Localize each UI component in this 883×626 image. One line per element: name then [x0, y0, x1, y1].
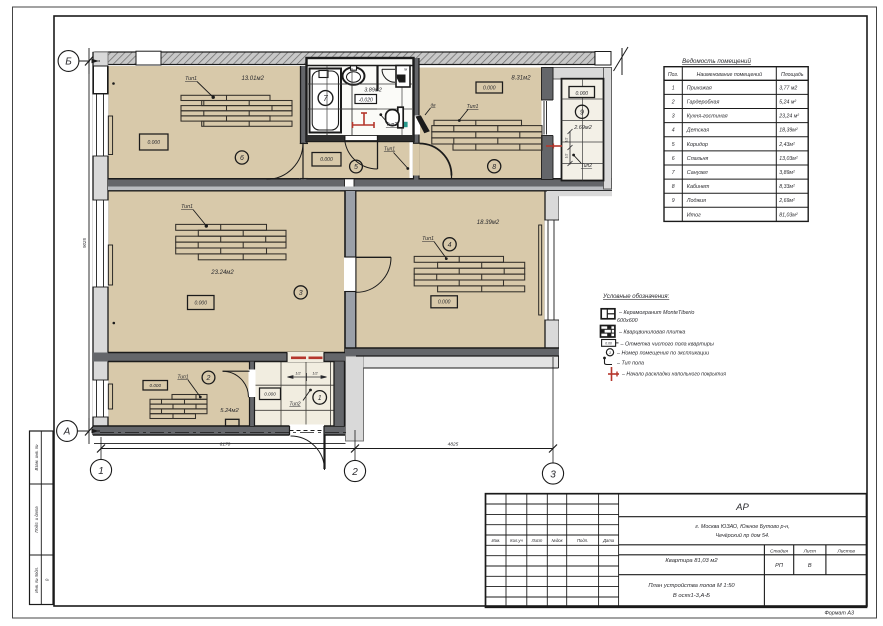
svg-text:3,77 м2: 3,77 м2: [779, 85, 797, 91]
svg-text:– Номер помещения по экспликац: – Номер помещения по экспликации: [616, 351, 709, 357]
svg-text:Наименование помещений: Наименование помещений: [697, 71, 762, 78]
svg-text:9: 9: [580, 110, 584, 117]
svg-text:г. Москва ЮЗАО, Южное Бутово р: г. Москва ЮЗАО, Южное Бутово р-н,: [695, 524, 790, 530]
svg-text:2,43м²: 2,43м²: [778, 142, 795, 148]
svg-text:1: 1: [318, 395, 322, 402]
svg-text:Поз.: Поз.: [668, 72, 678, 78]
svg-text:АР: АР: [735, 502, 749, 513]
svg-text:3.89м2: 3.89м2: [364, 88, 382, 94]
svg-text:0.000: 0.000: [320, 157, 333, 163]
svg-text:Ведомость помещений: Ведомость помещений: [682, 58, 751, 65]
svg-text:– Начало раскладки напольного: – Начало раскладки напольного покрытия: [621, 372, 726, 378]
svg-text:5.24м2: 5.24м2: [220, 408, 239, 414]
svg-text:0.000: 0.000: [150, 383, 162, 388]
svg-text:23.24м2: 23.24м2: [210, 270, 234, 276]
svg-text:2: 2: [206, 375, 211, 382]
svg-text:Прихожая: Прихожая: [687, 85, 712, 91]
svg-text:Листов: Листов: [836, 549, 855, 555]
svg-text:Тип2: Тип2: [386, 122, 397, 128]
svg-text:4825: 4825: [448, 442, 459, 448]
svg-text:0.000: 0.000: [147, 140, 160, 146]
svg-text:В: В: [808, 563, 812, 569]
svg-text:4: 4: [672, 128, 675, 134]
svg-text:В осях1-3,А-Б: В осях1-3,А-Б: [673, 593, 710, 599]
svg-text:9025: 9025: [82, 237, 87, 248]
svg-text:5,24 м²: 5,24 м²: [779, 99, 796, 105]
svg-text:4: 4: [448, 242, 452, 249]
svg-text:-0.020: -0.020: [359, 97, 373, 103]
svg-text:Тип1: Тип1: [181, 204, 193, 210]
svg-text:5: 5: [354, 164, 358, 171]
svg-text:0.000: 0.000: [483, 85, 496, 91]
svg-text:Лист: Лист: [803, 549, 816, 555]
svg-text:0.00: 0.00: [605, 342, 612, 346]
svg-text:Спальня: Спальня: [687, 156, 709, 162]
svg-text:Квартира 81,03 м2: Квартира 81,03 м2: [665, 558, 718, 564]
svg-text:Стадия: Стадия: [770, 549, 788, 555]
svg-text:– Кварцвиниловая плитка: – Кварцвиниловая плитка: [618, 330, 685, 336]
svg-text:6: 6: [240, 155, 244, 162]
svg-text:Коридор: Коридор: [687, 142, 708, 148]
svg-text:0.000: 0.000: [264, 392, 276, 397]
svg-text:Площадь: Площадь: [781, 72, 804, 78]
svg-text:1: 1: [609, 350, 611, 355]
svg-text:Взам. инв. №: Взам. инв. №: [34, 444, 39, 470]
svg-text:3: 3: [550, 469, 556, 480]
svg-text:дв: дв: [431, 103, 436, 108]
svg-text:6170: 6170: [220, 442, 231, 448]
svg-text:0.000: 0.000: [576, 91, 589, 97]
svg-text:Кабинет: Кабинет: [687, 184, 710, 190]
svg-text:Тип2: Тип2: [581, 163, 592, 169]
svg-text:600х600: 600х600: [617, 318, 638, 324]
svg-text:№док: №док: [551, 538, 563, 543]
svg-text:18,39м²: 18,39м²: [779, 128, 798, 134]
svg-text:5: 5: [672, 142, 675, 148]
svg-text:2.69м2: 2.69м2: [573, 125, 592, 131]
svg-text:Лист: Лист: [531, 538, 543, 543]
svg-text:7: 7: [323, 94, 328, 103]
svg-text:3,89м²: 3,89м²: [779, 170, 795, 176]
svg-text:8: 8: [492, 164, 496, 171]
svg-text:13.01м2: 13.01м2: [241, 76, 264, 82]
svg-text:8.31м2: 8.31м2: [511, 76, 531, 82]
svg-text:1: 1: [98, 466, 104, 477]
svg-text:13,03м²: 13,03м²: [779, 156, 798, 162]
svg-text:РП: РП: [775, 563, 784, 569]
svg-text:3: 3: [299, 290, 303, 297]
svg-text:Кол.уч: Кол.уч: [510, 538, 523, 543]
svg-text:8: 8: [672, 184, 675, 190]
svg-text:2: 2: [671, 99, 675, 105]
svg-text:А: А: [63, 427, 71, 438]
svg-text:Итог: Итог: [687, 212, 701, 218]
svg-text:Детская: Детская: [686, 128, 709, 134]
svg-text:Формат А3: Формат А3: [825, 611, 855, 617]
svg-text:Тип1: Тип1: [384, 147, 395, 153]
svg-text:Условные обозначения:: Условные обозначения:: [602, 294, 670, 300]
svg-text:1/2: 1/2: [295, 372, 301, 376]
svg-text:Тип1: Тип1: [185, 76, 197, 82]
svg-text:пк: пк: [404, 67, 408, 71]
svg-text:Лоджия: Лоджия: [686, 198, 706, 204]
svg-text:Подп. и дата: Подп. и дата: [34, 506, 39, 533]
svg-text:0.000: 0.000: [194, 300, 207, 306]
svg-text:1/2: 1/2: [312, 372, 318, 376]
svg-text:Гардеробная: Гардеробная: [687, 99, 720, 105]
svg-text:8,33м²: 8,33м²: [779, 184, 795, 190]
svg-text:План устройства полов М 1:50: План устройства полов М 1:50: [648, 582, 735, 589]
svg-text:– Отметка чистого пола квартир: – Отметка чистого пола квартиры: [620, 342, 714, 348]
svg-text:1/2: 1/2: [565, 154, 569, 159]
svg-text:2,69м²: 2,69м²: [778, 198, 795, 204]
svg-text:Изм.: Изм.: [492, 538, 501, 543]
svg-text:23,24 м²: 23,24 м²: [778, 114, 799, 120]
svg-text:0: 0: [45, 578, 50, 581]
svg-text:0.000: 0.000: [438, 300, 451, 306]
svg-text:Тип1: Тип1: [467, 104, 479, 110]
svg-text:81,03м²: 81,03м²: [779, 212, 798, 218]
svg-text:1: 1: [672, 85, 675, 91]
svg-text:Б: Б: [65, 57, 72, 68]
svg-text:Тип1: Тип1: [177, 375, 188, 381]
svg-text:1/2: 1/2: [565, 138, 569, 143]
svg-text:Тип2: Тип2: [289, 402, 300, 408]
svg-text:– Тип пола: – Тип пола: [616, 361, 644, 367]
svg-text:Инв. № подл.: Инв. № подл.: [34, 567, 39, 593]
svg-text:Дата: Дата: [602, 538, 615, 543]
svg-text:Санузел: Санузел: [687, 170, 708, 176]
svg-text:9: 9: [672, 198, 675, 204]
svg-text:Тип1: Тип1: [422, 236, 434, 242]
svg-text:Кухня-гостиная: Кухня-гостиная: [687, 114, 728, 120]
svg-text:6: 6: [672, 156, 675, 162]
svg-text:Подп.: Подп.: [577, 538, 588, 543]
svg-text:18.39м2: 18.39м2: [477, 220, 500, 226]
svg-text:Чечёрский пр дом 54.: Чечёрский пр дом 54.: [716, 532, 770, 539]
svg-text:– Керамогранит МonteТiberio: – Керамогранит МonteТiberio: [618, 310, 694, 316]
svg-text:3: 3: [672, 114, 675, 120]
svg-text:2: 2: [351, 467, 358, 478]
